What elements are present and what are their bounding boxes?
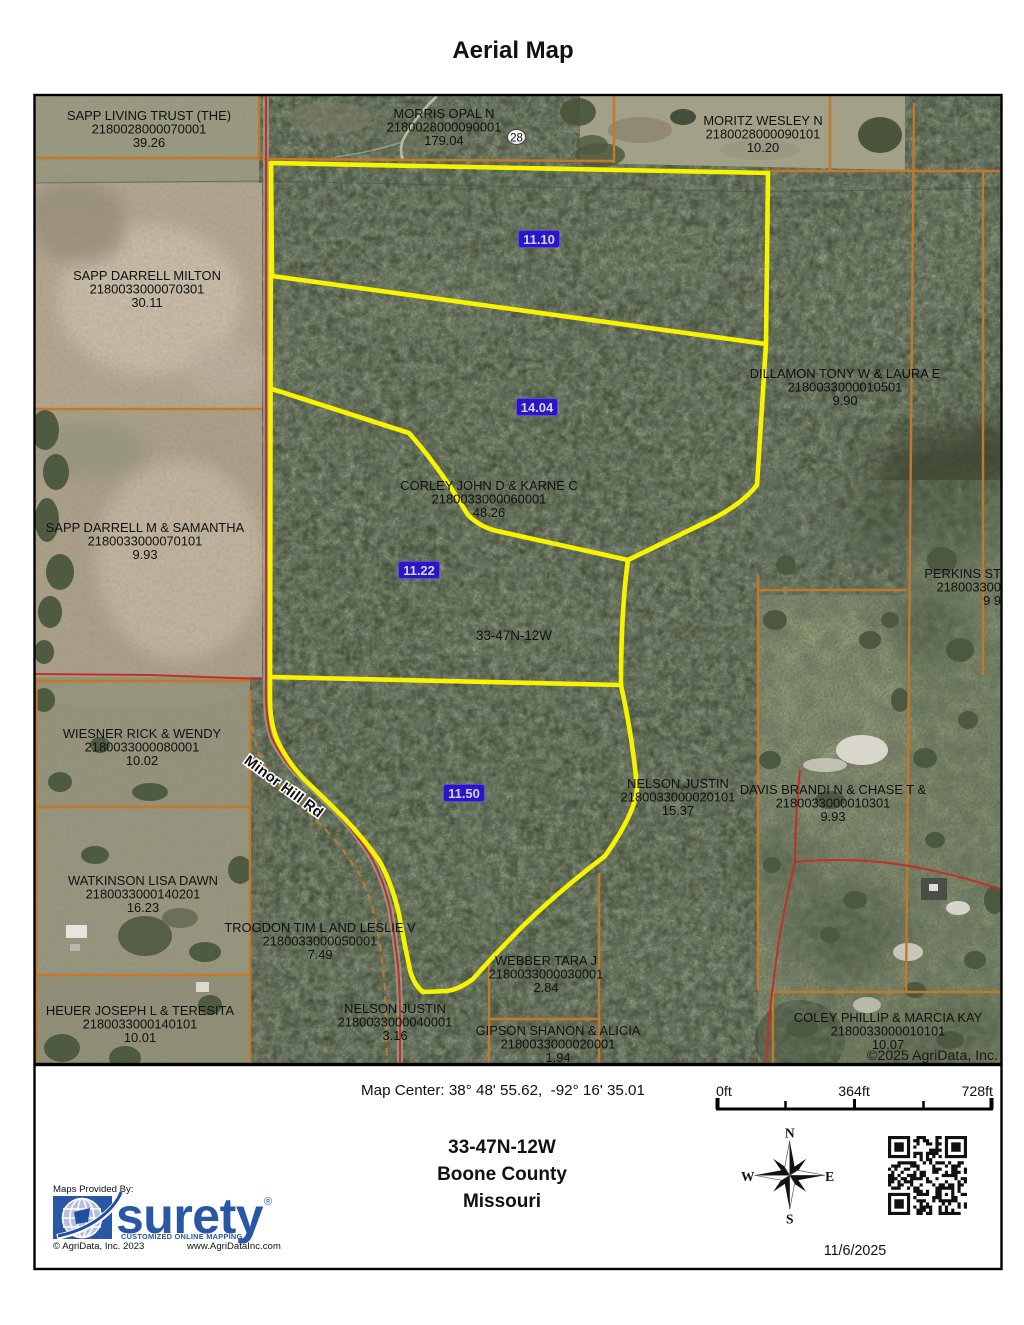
svg-text:39.26: 39.26 [133,135,165,150]
svg-text:11.10: 11.10 [523,232,555,247]
svg-text:10.02: 10.02 [126,753,158,768]
svg-text:16.23: 16.23 [127,900,159,915]
svg-text:30.11: 30.11 [131,295,162,310]
svg-text:11.50: 11.50 [448,786,480,801]
svg-text:3.16: 3.16 [382,1028,407,1043]
svg-text:7.49: 7.49 [307,947,332,962]
svg-text:S: S [786,1211,794,1226]
svg-text:CUSTOMIZED ONLINE MAPPING: CUSTOMIZED ONLINE MAPPING [121,1232,243,1241]
svg-text:Missouri: Missouri [463,1191,541,1212]
svg-text:28: 28 [510,132,523,144]
svg-text:48.26: 48.26 [473,505,505,520]
svg-text:®: ® [264,1196,272,1208]
svg-text:11.22: 11.22 [403,563,435,578]
svg-text:9 9: 9 9 [983,593,1001,608]
svg-text:33-47N-12W: 33-47N-12W [476,628,552,643]
svg-text:10.20: 10.20 [747,140,779,155]
svg-text:9.90: 9.90 [832,393,857,408]
svg-text:Aerial Map: Aerial Map [452,37,573,64]
svg-text:15.37: 15.37 [662,803,694,818]
svg-text:33-47N-12W: 33-47N-12W [448,1137,556,1158]
svg-text:Map Center: 38° 48' 55.62, -9: Map Center: 38° 48' 55.62, -92° 16' 35.0… [361,1082,645,1099]
svg-text:9.93: 9.93 [132,547,157,562]
svg-text:9.93: 9.93 [820,809,845,824]
svg-text:0ft: 0ft [716,1084,732,1100]
svg-text:www.AgriDataInc.com: www.AgriDataInc.com [186,1241,281,1252]
svg-text:N: N [785,1125,795,1140]
svg-text:W: W [741,1169,755,1184]
svg-text:10.01: 10.01 [124,1030,156,1045]
svg-text:364ft: 364ft [838,1084,870,1100]
svg-text:E: E [825,1169,834,1184]
svg-text:179.04: 179.04 [424,133,463,148]
svg-text:Boone County: Boone County [437,1164,567,1185]
svg-text:11/6/2025: 11/6/2025 [824,1243,887,1259]
svg-text:2.84: 2.84 [533,980,558,995]
svg-text:14.04: 14.04 [521,400,554,415]
svg-text:©2025 AgriData, Inc.: ©2025 AgriData, Inc. [867,1048,998,1064]
svg-text:728ft: 728ft [961,1084,993,1100]
svg-text:© AgriData, Inc. 2023: © AgriData, Inc. 2023 [53,1241,144,1252]
svg-text:1.94: 1.94 [545,1050,570,1065]
